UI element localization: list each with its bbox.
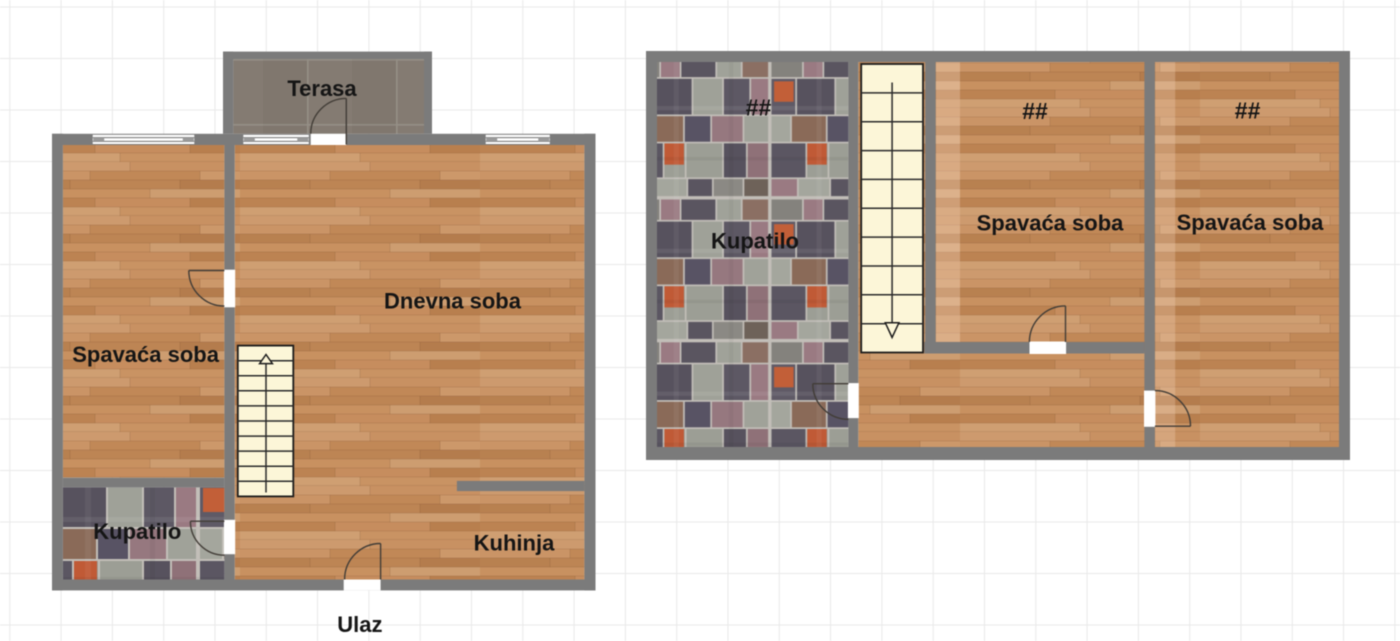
svg-text:Kupatilo: Kupatilo: [711, 228, 799, 253]
svg-text:##: ##: [746, 95, 772, 121]
svg-text:Spavaća soba: Spavaća soba: [72, 342, 220, 367]
svg-text:Ulaz: Ulaz: [337, 612, 382, 637]
svg-text:Dnevna soba: Dnevna soba: [384, 289, 522, 314]
svg-text:##: ##: [1235, 98, 1261, 124]
svg-text:Spavaća soba: Spavaća soba: [977, 211, 1125, 236]
svg-text:##: ##: [1022, 98, 1048, 124]
svg-text:Terasa: Terasa: [287, 76, 357, 101]
svg-text:Kuhinja: Kuhinja: [474, 531, 555, 556]
svg-text:Spavaća soba: Spavaća soba: [1177, 210, 1325, 235]
svg-text:Kupatilo: Kupatilo: [93, 519, 181, 544]
